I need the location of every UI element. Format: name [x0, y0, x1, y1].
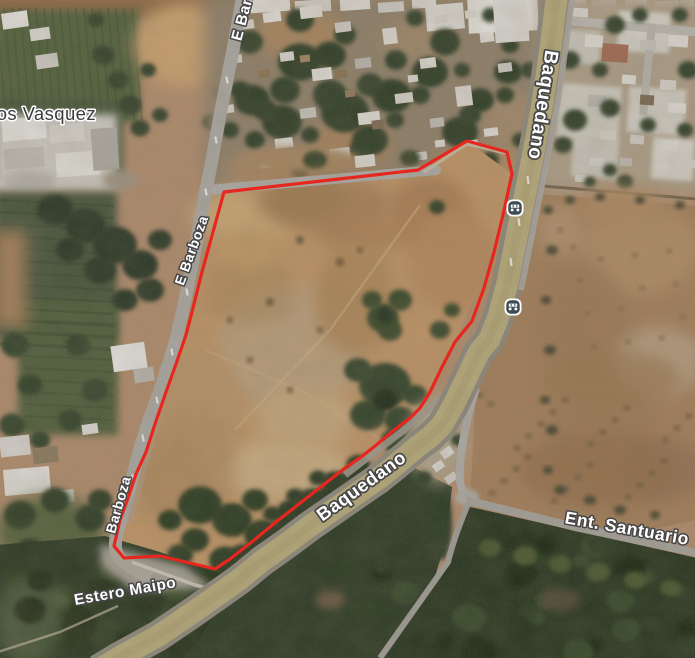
svg-text:Los Vasquez: Los Vasquez: [0, 103, 96, 124]
